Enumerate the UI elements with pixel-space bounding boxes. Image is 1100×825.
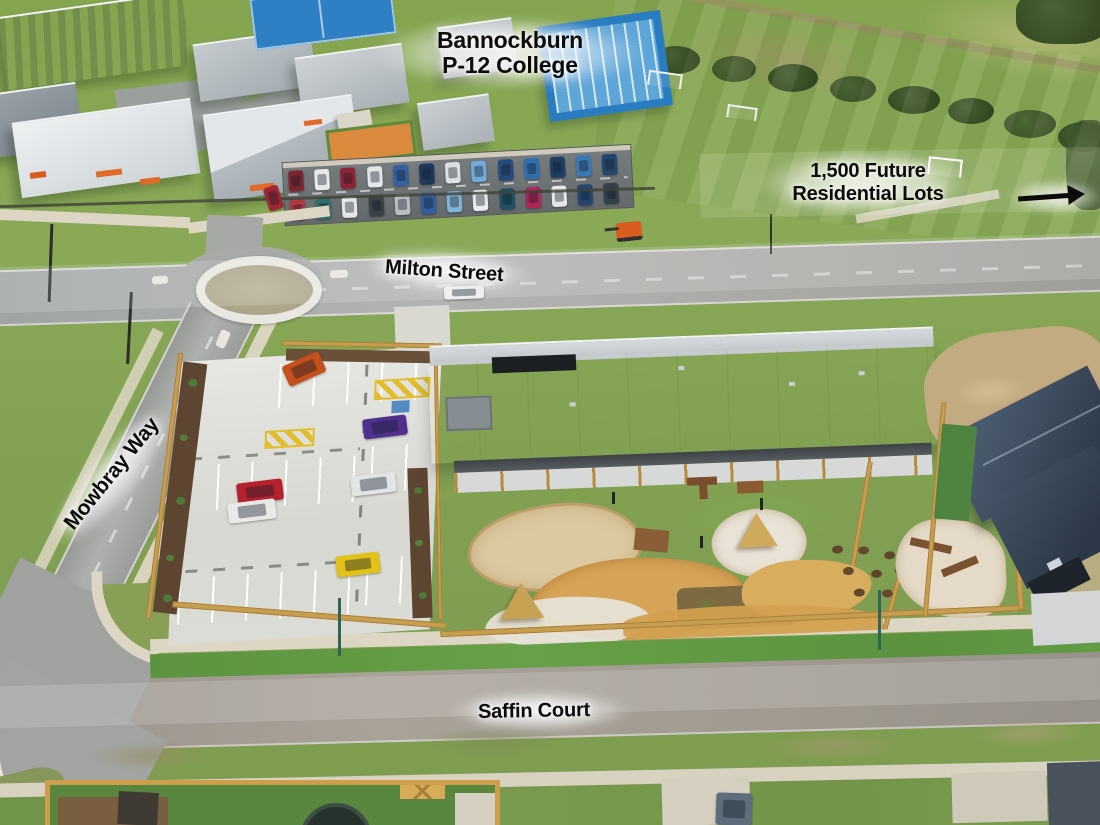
play-structure [737, 481, 763, 494]
college-label-line1: Bannockburn [385, 28, 635, 53]
roof-vent [678, 366, 684, 370]
car [577, 184, 593, 206]
light-pole-teal [338, 598, 341, 656]
roof-vent [570, 402, 576, 406]
college-label: Bannockburn P-12 College [385, 28, 635, 78]
footpath [0, 209, 190, 228]
school-building [417, 93, 495, 151]
car [368, 195, 384, 217]
car [340, 167, 356, 189]
arrow-shaft [1018, 193, 1070, 202]
car [393, 165, 409, 187]
arrow-head [1067, 184, 1085, 205]
shade-pole [760, 498, 763, 510]
car [419, 163, 435, 185]
play-structure [699, 477, 708, 499]
teepee [736, 512, 777, 548]
future-lots-label: 1,500 Future Residential Lots [768, 160, 968, 206]
car [602, 154, 618, 176]
car [550, 156, 566, 178]
car [524, 158, 540, 180]
trampoline [300, 803, 372, 825]
yellow-hatching [264, 428, 315, 449]
accessible-bay-marking [391, 400, 409, 413]
timber-deck [633, 528, 669, 553]
garden-shed [117, 791, 159, 825]
concrete-pad [455, 793, 495, 825]
teepee [499, 582, 544, 620]
roof-vent [859, 371, 865, 375]
shade-pole [612, 492, 615, 504]
internal-fence [849, 457, 874, 576]
car [471, 160, 487, 182]
light-pole-teal [878, 590, 881, 650]
car [342, 196, 358, 218]
excavator-arm [605, 227, 619, 231]
yellow-hatching [374, 377, 431, 401]
aerial-photo: Bannockburn P-12 College 1,500 Future Re… [0, 0, 1100, 825]
tree-clump [1016, 0, 1100, 44]
school-building [0, 0, 191, 91]
car [497, 159, 513, 181]
roof-vent [789, 382, 795, 386]
car [367, 166, 383, 188]
car [288, 170, 304, 192]
arrow-right-icon [1017, 182, 1090, 211]
entry-notch [445, 395, 492, 431]
site-carpark [168, 346, 442, 645]
car [444, 285, 484, 299]
shade-pole [700, 536, 703, 548]
neighbour-roof-corner [1047, 761, 1100, 825]
backyard [45, 780, 500, 825]
excavator [615, 221, 643, 243]
log-seats [832, 545, 843, 553]
school-wall-accent [140, 177, 161, 185]
college-label-line2: P-12 College [385, 53, 635, 78]
saffin-court-label: Saffin Court [478, 699, 590, 724]
driveway-crossing [951, 771, 1047, 823]
car [314, 169, 330, 191]
car [604, 183, 620, 205]
future-lots-line1: 1,500 Future [768, 160, 968, 183]
car [445, 162, 461, 184]
solar-panel-strip [492, 354, 577, 373]
fence-gate [400, 783, 445, 799]
car [715, 792, 752, 825]
future-lots-line2: Residential Lots [768, 183, 968, 206]
car [576, 155, 592, 177]
house-driveway [1031, 590, 1100, 646]
